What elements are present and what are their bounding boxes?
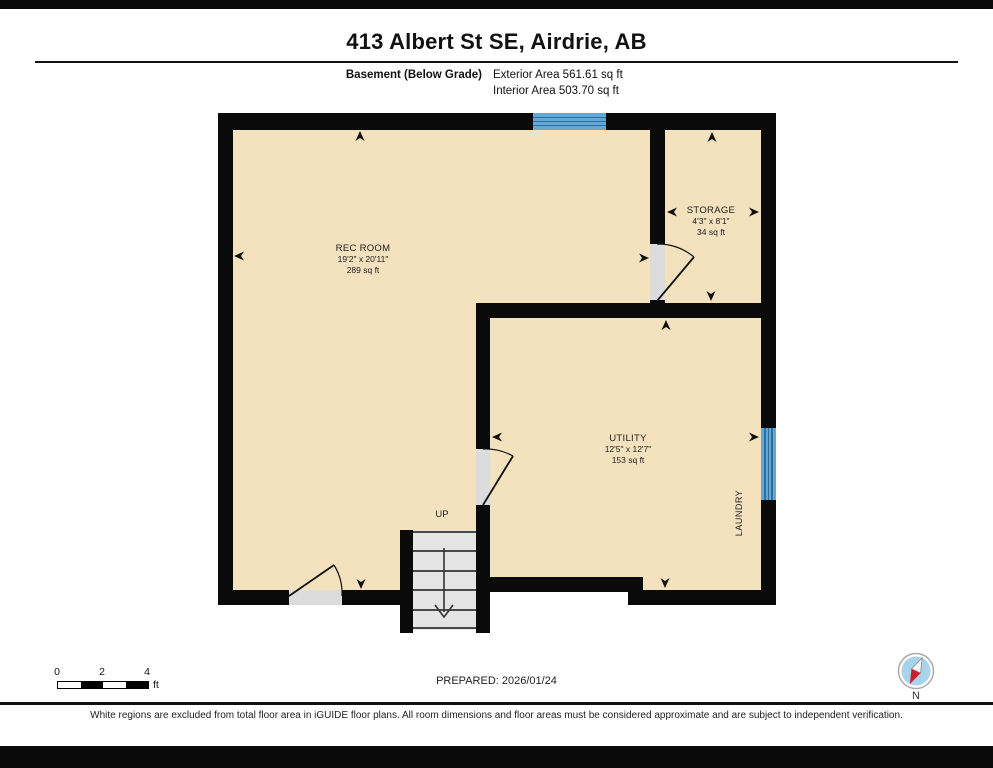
laundry-label: LAUNDRY <box>734 473 744 553</box>
compass-icon <box>893 648 939 694</box>
wall-stair-left <box>400 530 413 633</box>
rec-room-label: REC ROOM 19'2" x 20'11" 289 sq ft <box>303 243 423 276</box>
door-opening-rec-exterior <box>289 590 342 605</box>
utility-label: UTILITY 12'5" x 12'7" 153 sq ft <box>568 433 688 466</box>
storage-label: STORAGE 4'3" x 8'1" 34 sq ft <box>661 205 761 238</box>
up-label: UP <box>427 509 457 520</box>
wall-utility-bottom-right <box>628 590 776 605</box>
window-top <box>533 113 606 130</box>
wall-utility-bottom-left <box>476 577 643 592</box>
wall-left <box>218 113 233 605</box>
door-opening-storage <box>650 244 665 300</box>
door-opening-utility <box>476 449 490 505</box>
wall-top <box>218 113 776 130</box>
disclaimer-text: White regions are excluded from total fl… <box>0 710 993 721</box>
prepared-date: PREPARED: 2026/01/24 <box>0 675 993 687</box>
wall-right <box>761 113 776 605</box>
compass-north-label: N <box>905 690 927 702</box>
bottom-border-bar <box>0 746 993 768</box>
window-laundry <box>761 428 776 500</box>
footer-divider <box>0 702 993 705</box>
floorplan-page: 413 Albert St SE, Airdrie, AB Basement (… <box>0 0 993 768</box>
wall-mid-horizontal <box>476 303 776 318</box>
floorplan: REC ROOM 19'2" x 20'11" 289 sq ft STORAG… <box>0 0 993 768</box>
staircase <box>413 530 476 630</box>
rec-room-floor <box>233 130 476 590</box>
